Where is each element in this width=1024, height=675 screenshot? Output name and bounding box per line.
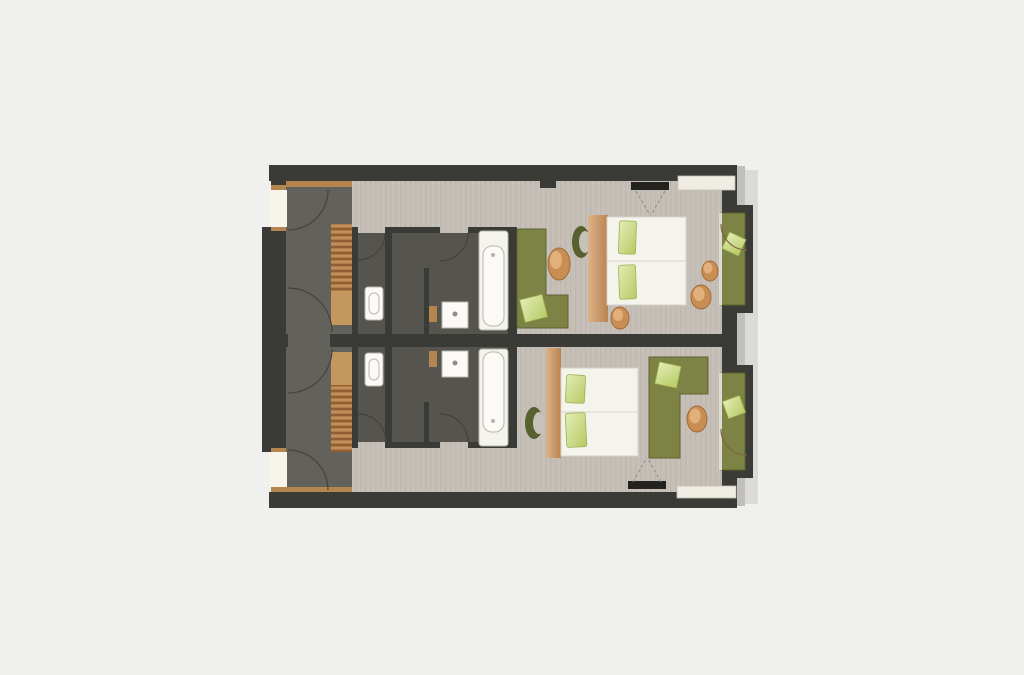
entry-door-opening-lower <box>269 452 287 487</box>
desk-chair-seat-lower <box>533 412 545 434</box>
window-band-lower <box>677 486 736 498</box>
vanity-faucet-lower <box>453 361 458 366</box>
vanity-faucet-upper <box>453 312 458 317</box>
wc-partition-upper <box>385 233 392 334</box>
door-frame-mark <box>271 185 286 190</box>
pouf-highlight <box>613 309 623 321</box>
bed-pillow <box>565 375 585 404</box>
door-frame-mark <box>271 487 286 492</box>
wall-stub-upper <box>540 178 556 188</box>
bed-pillow <box>618 265 636 300</box>
door-frame-mark <box>271 227 286 231</box>
party-wall-main <box>330 334 737 347</box>
bath-bench-lower <box>429 351 437 367</box>
bed-pillow <box>618 221 636 255</box>
pouf-highlight <box>550 251 562 269</box>
wc-partition-lower <box>385 347 392 442</box>
pouf-highlight <box>704 263 713 274</box>
bath-wall-left-upper <box>352 227 358 334</box>
floor-plan-scene <box>262 165 758 508</box>
door-frame-mark <box>271 448 286 452</box>
outer-wall-top <box>269 165 737 181</box>
balcony-wall-upper-s <box>722 305 753 313</box>
balcony-deck-upper <box>721 213 745 305</box>
balcony-wall-lower-s <box>722 470 753 478</box>
floor-plan-canvas <box>0 0 1024 675</box>
bath-wall-right-lower <box>508 347 517 448</box>
bath-wall-top-seg <box>385 227 440 233</box>
shower-partition-lower <box>424 402 429 442</box>
balcony-wall-lower-e <box>745 365 753 478</box>
floor-plan-page <box>0 0 1024 675</box>
balcony-wall-upper-e <box>745 205 753 313</box>
wardrobe-cabinet-upper <box>331 291 352 325</box>
headboard-lower <box>546 348 561 458</box>
tv-upper <box>631 182 669 190</box>
bathtub-basin-upper <box>483 246 504 326</box>
balcony-glass-lower <box>719 373 722 470</box>
bathtub-drain-lower <box>491 419 495 423</box>
party-wall-left <box>269 334 288 347</box>
headboard-upper <box>588 215 608 322</box>
wood-threshold-upper <box>286 181 352 187</box>
wardrobe-shelves-upper <box>331 224 352 291</box>
bath-wall-left-lower <box>352 347 358 448</box>
bath-bench-upper <box>429 306 437 322</box>
wardrobe-cabinet-lower <box>331 352 352 385</box>
toilet-upper <box>365 287 383 320</box>
entry-hall-connector-floor <box>288 334 330 347</box>
bath-wall-bottom-seg <box>385 442 440 448</box>
balcony-deck-lower <box>721 373 745 470</box>
pouf-highlight <box>694 287 705 301</box>
bed-pillow <box>565 412 587 447</box>
bath-wall-right-upper <box>508 227 517 334</box>
sofa-cushion-lower <box>655 362 681 388</box>
toilet-lower <box>365 353 383 386</box>
tv-lower <box>628 481 666 489</box>
pouf-highlight <box>690 409 701 424</box>
entry-door-opening-upper <box>269 190 287 227</box>
wardrobe-shelves-lower <box>331 385 352 452</box>
bathtub-drain-upper <box>491 253 495 257</box>
outer-wall-bottom <box>269 492 737 508</box>
shower-partition-upper <box>424 268 429 334</box>
window-band-upper <box>678 176 735 190</box>
sofa-cushion-upper <box>520 294 548 322</box>
